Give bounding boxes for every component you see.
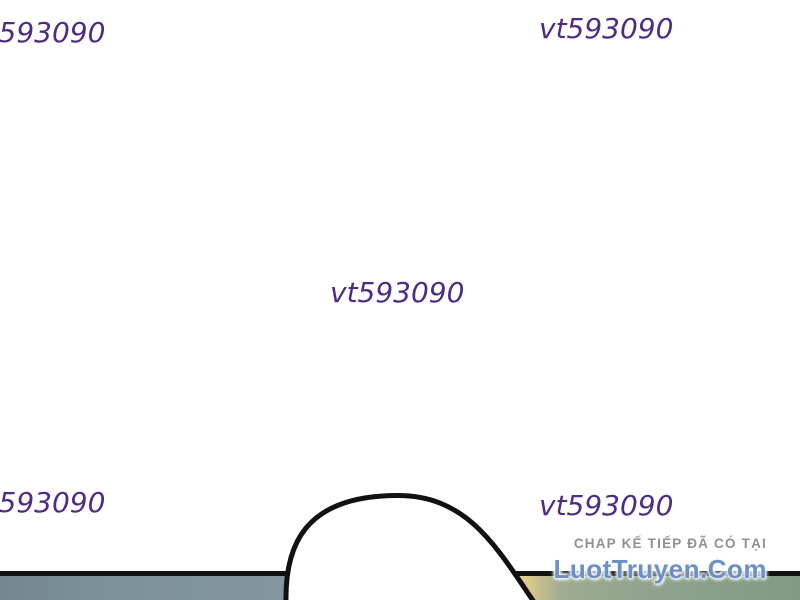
site-name-text: LuotTruyen.Com	[553, 554, 767, 585]
comic-page-viewport: vt593090 vt593090 vt593090 vt593090 vt59…	[0, 0, 800, 600]
watermark-bottom-right: vt593090	[539, 492, 673, 520]
watermark-center: vt593090	[330, 279, 464, 307]
watermark-top-right: vt593090	[539, 15, 673, 43]
next-chapter-promo: CHAP KẾ TIẾP ĐÃ CÓ TẠI LuotTruyen.Com	[553, 536, 767, 585]
head-dome-shape	[286, 496, 534, 600]
next-chapter-text: CHAP KẾ TIẾP ĐÃ CÓ TẠI	[553, 536, 767, 551]
watermark-top-left: vt593090	[0, 19, 105, 47]
character-head-outline	[265, 483, 555, 600]
watermark-bottom-left: vt593090	[0, 489, 105, 517]
